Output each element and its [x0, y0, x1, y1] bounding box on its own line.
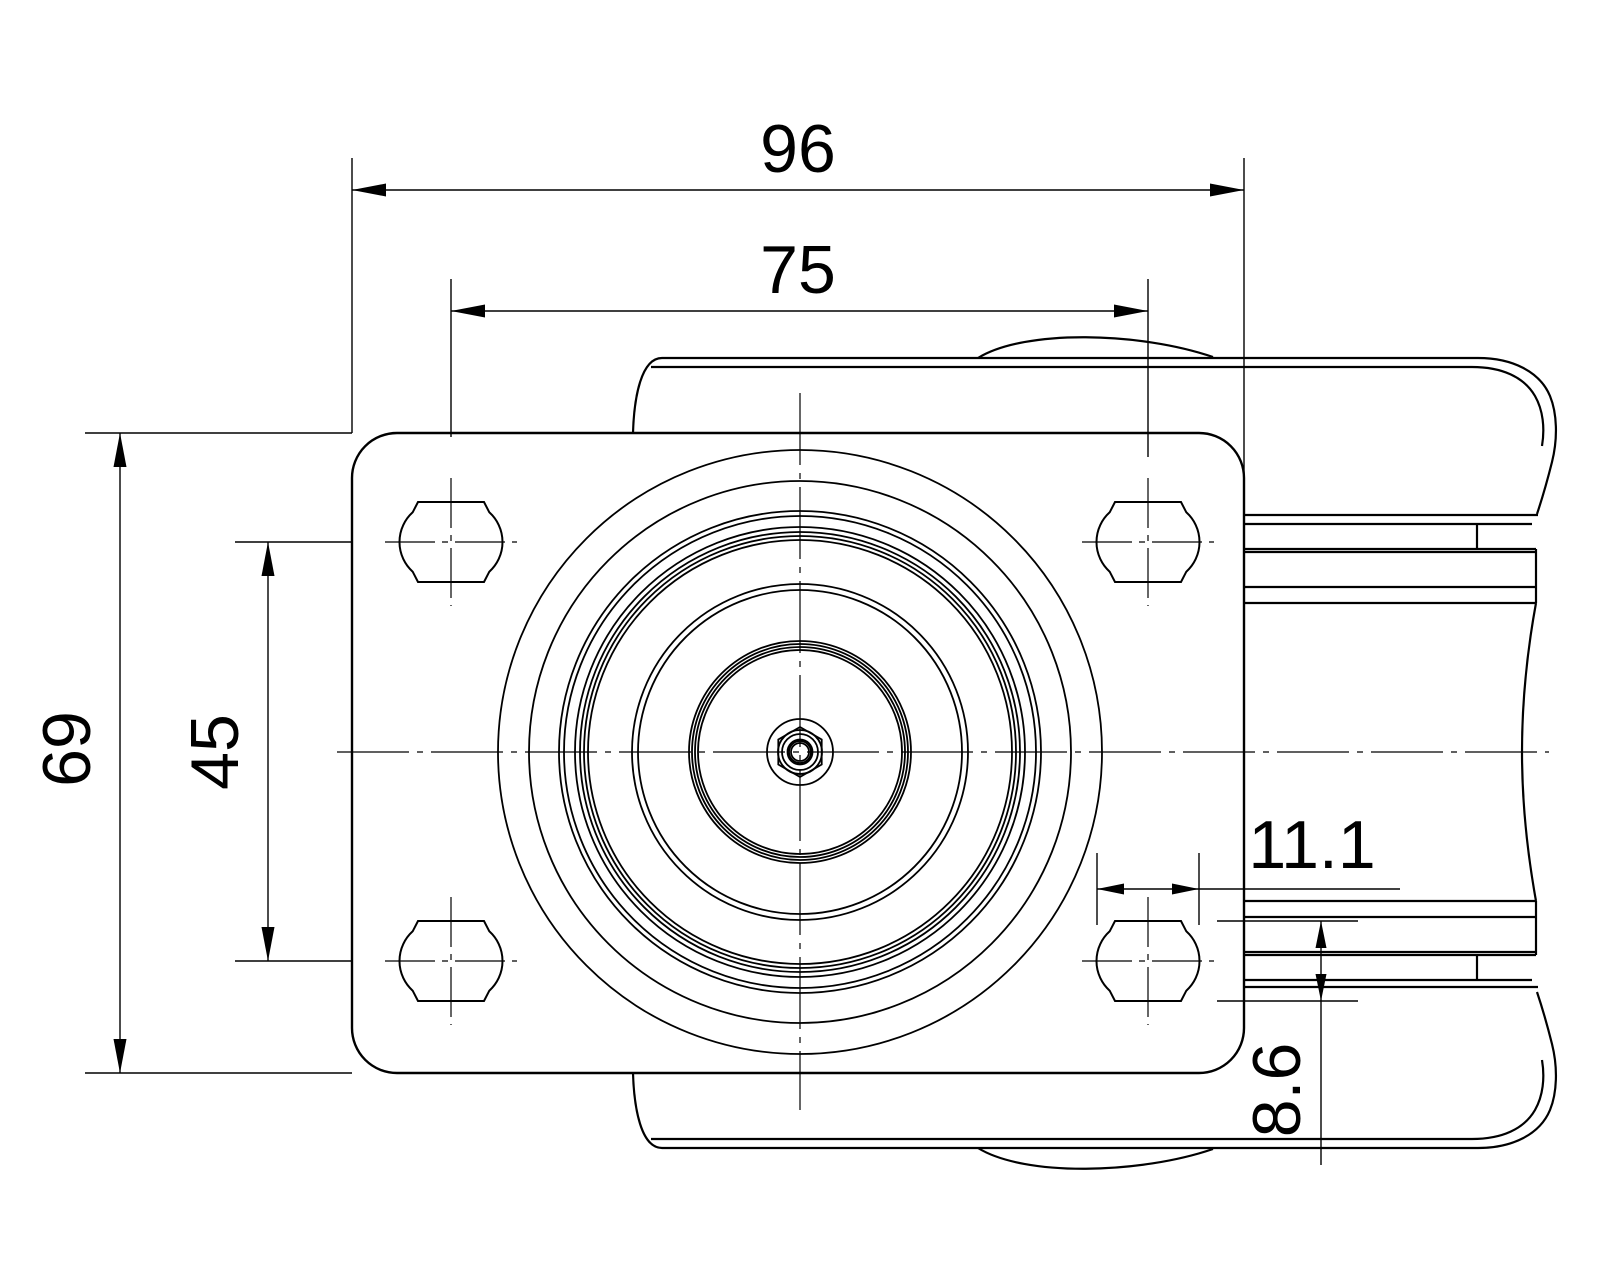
dimension-bolt-spacing-vertical: 45 — [177, 542, 352, 961]
dim-45-text: 45 — [177, 714, 253, 790]
swivel-dome-top — [978, 337, 1213, 358]
arrowhead — [262, 927, 275, 961]
caster-technical-drawing: 96 75 69 45 11.1 — [0, 0, 1600, 1280]
arrowhead — [262, 542, 275, 576]
arrowhead — [1114, 305, 1148, 318]
dim-69-text: 69 — [29, 711, 105, 787]
arrowhead — [1316, 921, 1327, 948]
dim-8-6-text: 8.6 — [1239, 1043, 1315, 1138]
arrowhead — [114, 1039, 127, 1073]
arrowhead — [352, 184, 386, 197]
dim-11-1-text: 11.1 — [1248, 807, 1375, 883]
dim-96-text: 96 — [760, 111, 836, 187]
arrowhead — [114, 433, 127, 467]
swivel-dome-bottom — [978, 1148, 1213, 1169]
dim-75-text: 75 — [760, 232, 836, 308]
arrowhead — [1210, 184, 1244, 197]
arrowhead — [451, 305, 485, 318]
drawing-page: 96 75 69 45 11.1 — [0, 0, 1600, 1280]
